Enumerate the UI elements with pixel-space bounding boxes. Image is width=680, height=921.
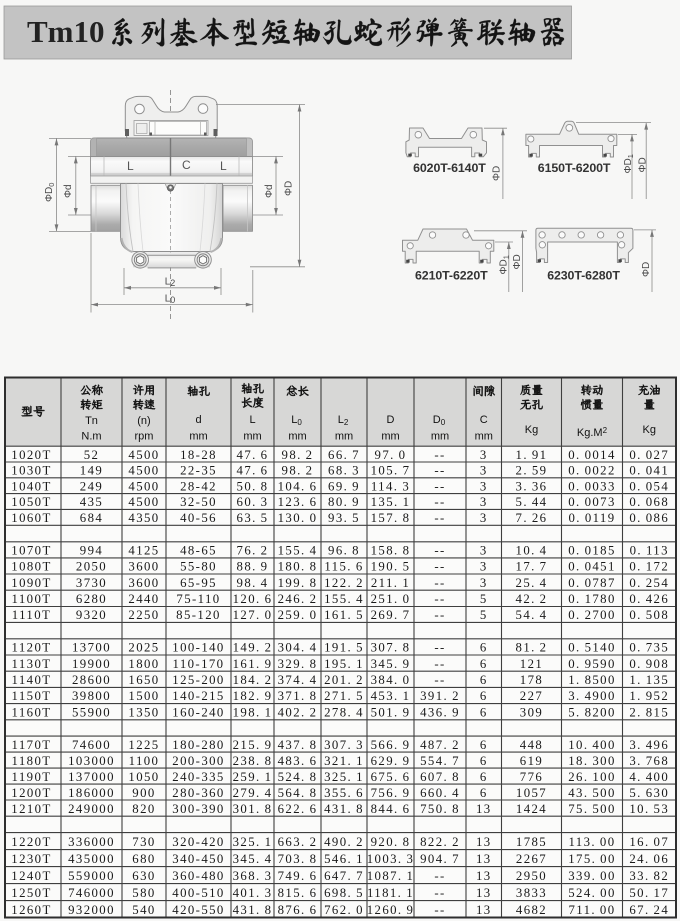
svg-text:--: --	[434, 903, 445, 917]
svg-text:3. 36: 3. 36	[516, 479, 548, 493]
svg-text:746000: 746000	[68, 886, 115, 900]
svg-text:47. 6: 47. 6	[237, 464, 269, 478]
svg-text:190. 5: 190. 5	[371, 560, 411, 574]
svg-text:3600: 3600	[128, 576, 159, 590]
svg-text:675. 6: 675. 6	[371, 770, 411, 784]
svg-text:259. 0: 259. 0	[278, 608, 318, 622]
svg-text:103000: 103000	[68, 754, 115, 768]
svg-text:580: 580	[132, 886, 155, 900]
svg-text:123. 6: 123. 6	[278, 495, 318, 509]
svg-text:3833: 3833	[516, 886, 547, 900]
svg-text:0. 735: 0. 735	[629, 641, 669, 655]
svg-text:240-335: 240-335	[172, 770, 224, 784]
svg-text:1240T: 1240T	[11, 869, 51, 883]
svg-text:900: 900	[132, 786, 155, 800]
svg-text:ΦD: ΦD	[638, 157, 649, 172]
svg-text:201. 2: 201. 2	[324, 673, 364, 687]
svg-text:43. 500: 43. 500	[568, 786, 616, 800]
svg-text:340-450: 340-450	[172, 852, 224, 866]
svg-text:554. 7: 554. 7	[420, 754, 460, 768]
svg-text:C: C	[480, 414, 488, 426]
svg-text:647. 7: 647. 7	[324, 869, 364, 883]
svg-text:320-420: 320-420	[172, 835, 224, 849]
svg-text:730: 730	[132, 835, 155, 849]
svg-text:622. 6: 622. 6	[278, 802, 318, 816]
svg-text:1050T: 1050T	[11, 495, 51, 509]
svg-text:435: 435	[80, 495, 103, 509]
svg-text:--: --	[434, 641, 445, 655]
svg-text:307. 8: 307. 8	[371, 641, 411, 655]
svg-text:55-80: 55-80	[180, 560, 217, 574]
svg-text:336000: 336000	[68, 835, 115, 849]
svg-text:215. 9: 215. 9	[233, 738, 273, 752]
svg-text:1030T: 1030T	[11, 464, 51, 478]
svg-text:5. 8200: 5. 8200	[568, 705, 616, 719]
svg-text:130. 0: 130. 0	[278, 511, 318, 525]
svg-text:355. 6: 355. 6	[324, 786, 364, 800]
svg-text:ΦD: ΦD	[492, 166, 503, 181]
svg-text:815. 6: 815. 6	[278, 886, 318, 900]
svg-text:371. 8: 371. 8	[278, 689, 318, 703]
svg-text:9320: 9320	[76, 608, 107, 622]
svg-text:191. 5: 191. 5	[324, 641, 364, 655]
svg-text:66. 7: 66. 7	[328, 448, 360, 462]
svg-text:1070T: 1070T	[11, 544, 51, 558]
svg-text:0. 508: 0. 508	[629, 608, 669, 622]
svg-text:mm: mm	[335, 431, 353, 443]
svg-text:374. 4: 374. 4	[278, 673, 318, 687]
svg-text:4500: 4500	[128, 464, 159, 478]
svg-text:60. 3: 60. 3	[237, 495, 269, 509]
svg-text:345. 4: 345. 4	[233, 852, 273, 866]
svg-text:149. 2: 149. 2	[233, 641, 273, 655]
svg-text:0. 2700: 0. 2700	[568, 608, 616, 622]
svg-text:L: L	[220, 159, 227, 173]
svg-text:1080T: 1080T	[11, 560, 51, 574]
svg-text:3730: 3730	[76, 576, 107, 590]
svg-text:160-240: 160-240	[172, 705, 224, 719]
svg-text:524. 8: 524. 8	[278, 770, 318, 784]
svg-text:566. 9: 566. 9	[371, 738, 411, 752]
svg-text:98. 2: 98. 2	[282, 448, 314, 462]
svg-text:68. 3: 68. 3	[328, 464, 360, 478]
svg-text:1. 135: 1. 135	[629, 673, 669, 687]
svg-text:1020T: 1020T	[11, 448, 51, 462]
svg-text:0. 041: 0. 041	[629, 464, 669, 478]
svg-text:40-56: 40-56	[180, 511, 217, 525]
svg-text:994: 994	[80, 544, 103, 558]
svg-text:6: 6	[480, 770, 488, 784]
svg-text:10. 400: 10. 400	[568, 738, 616, 752]
svg-text:2250: 2250	[128, 608, 159, 622]
svg-text:75-110: 75-110	[176, 592, 220, 606]
svg-text:--: --	[434, 657, 445, 671]
svg-text:4500: 4500	[128, 479, 159, 493]
svg-text:279. 4: 279. 4	[233, 786, 273, 800]
svg-text:932000: 932000	[68, 903, 115, 917]
svg-text:39800: 39800	[72, 689, 111, 703]
svg-text:32-50: 32-50	[180, 495, 217, 509]
svg-text:2267: 2267	[516, 852, 547, 866]
svg-text:391. 2: 391. 2	[420, 689, 460, 703]
svg-text:0. 0185: 0. 0185	[568, 544, 616, 558]
svg-text:1040T: 1040T	[11, 479, 51, 493]
svg-text:Kg: Kg	[525, 424, 538, 436]
svg-text:1003. 3: 1003. 3	[367, 852, 415, 866]
svg-text:1785: 1785	[516, 835, 547, 849]
svg-text:0. 0022: 0. 0022	[568, 464, 616, 478]
svg-text:13700: 13700	[72, 641, 111, 655]
svg-text:301. 8: 301. 8	[233, 802, 273, 816]
svg-text:1225: 1225	[128, 738, 159, 752]
svg-text:mm: mm	[288, 431, 306, 443]
svg-text:Φd: Φd	[264, 184, 275, 198]
svg-text:402. 2: 402. 2	[278, 705, 318, 719]
svg-text:3: 3	[480, 479, 488, 493]
svg-text:180. 8: 180. 8	[278, 560, 318, 574]
svg-text:3600: 3600	[128, 560, 159, 574]
svg-text:158. 8: 158. 8	[371, 544, 411, 558]
svg-text:762. 0: 762. 0	[324, 903, 364, 917]
svg-text:50. 17: 50. 17	[629, 886, 669, 900]
svg-text:0. 426: 0. 426	[629, 592, 669, 606]
svg-text:321. 1: 321. 1	[324, 754, 364, 768]
svg-text:74600: 74600	[72, 738, 111, 752]
svg-text:16. 07: 16. 07	[629, 835, 669, 849]
svg-text:920. 8: 920. 8	[371, 835, 411, 849]
svg-text:453. 1: 453. 1	[371, 689, 411, 703]
svg-text:876. 6: 876. 6	[278, 903, 318, 917]
svg-text:52: 52	[84, 448, 100, 462]
svg-text:3. 4900: 3. 4900	[568, 689, 616, 703]
svg-text:125-200: 125-200	[172, 673, 224, 687]
svg-text:431. 8: 431. 8	[233, 903, 273, 917]
svg-text:22-35: 22-35	[180, 464, 217, 478]
svg-text:0. 9590: 0. 9590	[568, 657, 616, 671]
svg-text:249: 249	[80, 479, 103, 493]
svg-text:1060T: 1060T	[11, 511, 51, 525]
svg-text:100-140: 100-140	[172, 641, 224, 655]
svg-text:4. 400: 4. 400	[629, 770, 669, 784]
svg-text:663. 2: 663. 2	[278, 835, 318, 849]
svg-text:304. 4: 304. 4	[278, 641, 318, 655]
svg-text:10. 4: 10. 4	[516, 544, 548, 558]
svg-text:1120T: 1120T	[12, 641, 52, 655]
svg-text:6: 6	[480, 689, 488, 703]
svg-text:--: --	[434, 592, 445, 606]
svg-text:368. 3: 368. 3	[233, 869, 273, 883]
svg-text:28600: 28600	[72, 673, 111, 687]
svg-text:88. 9: 88. 9	[237, 560, 269, 574]
svg-text:822. 2: 822. 2	[420, 835, 460, 849]
svg-text:3: 3	[480, 544, 488, 558]
svg-text:13: 13	[476, 903, 492, 917]
svg-text:3: 3	[480, 560, 488, 574]
svg-text:--: --	[434, 464, 445, 478]
svg-text:1150T: 1150T	[12, 689, 52, 703]
svg-text:(n): (n)	[137, 415, 150, 427]
svg-text:3: 3	[480, 495, 488, 509]
svg-text:1100T: 1100T	[12, 592, 52, 606]
svg-text:0. 254: 0. 254	[629, 576, 669, 590]
svg-text:175. 00: 175. 00	[568, 852, 616, 866]
svg-text:524. 00: 524. 00	[568, 886, 616, 900]
svg-text:98. 4: 98. 4	[237, 576, 269, 590]
svg-text:80. 9: 80. 9	[328, 495, 360, 509]
svg-text:1650: 1650	[128, 673, 159, 687]
svg-text:Tn: Tn	[85, 415, 98, 427]
svg-text:5. 630: 5. 630	[629, 786, 669, 800]
svg-text:Kg: Kg	[643, 424, 656, 436]
svg-text:3: 3	[480, 448, 488, 462]
svg-text:178: 178	[520, 673, 543, 687]
svg-text:69. 9: 69. 9	[328, 479, 360, 493]
svg-text:6: 6	[480, 641, 488, 655]
svg-text:1220T: 1220T	[11, 835, 51, 849]
svg-text:ΦD: ΦD	[641, 262, 652, 277]
svg-text:680: 680	[132, 852, 155, 866]
svg-text:--: --	[434, 495, 445, 509]
svg-text:184. 2: 184. 2	[233, 673, 273, 687]
svg-text:0. 113: 0. 113	[630, 544, 669, 558]
svg-text:431. 8: 431. 8	[324, 802, 364, 816]
svg-text:Φd: Φd	[63, 184, 74, 198]
svg-text:1180T: 1180T	[12, 754, 52, 768]
svg-text:3. 768: 3. 768	[629, 754, 669, 768]
svg-text:4350: 4350	[128, 511, 159, 525]
svg-text:1424: 1424	[516, 802, 547, 816]
svg-text:200-300: 200-300	[172, 754, 224, 768]
svg-text:300-390: 300-390	[172, 802, 224, 816]
svg-text:329. 8: 329. 8	[278, 657, 318, 671]
svg-text:122. 2: 122. 2	[324, 576, 364, 590]
svg-text:1. 952: 1. 952	[629, 689, 669, 703]
svg-text:684: 684	[80, 511, 103, 525]
svg-text:1130T: 1130T	[12, 657, 52, 671]
svg-text:--: --	[434, 479, 445, 493]
svg-text:13: 13	[476, 835, 492, 849]
svg-text:5. 44: 5. 44	[516, 495, 548, 509]
svg-text:47. 6: 47. 6	[237, 448, 269, 462]
svg-text:120. 6: 120. 6	[233, 592, 273, 606]
svg-text:Tm10: Tm10	[27, 14, 105, 49]
svg-text:1090T: 1090T	[11, 576, 51, 590]
svg-text:750. 8: 750. 8	[420, 802, 460, 816]
svg-text:mm: mm	[243, 431, 261, 443]
svg-text:63. 5: 63. 5	[237, 511, 269, 525]
svg-text:227: 227	[520, 689, 543, 703]
svg-text:199. 8: 199. 8	[278, 576, 318, 590]
svg-text:mm: mm	[431, 431, 449, 443]
svg-text:420-550: 420-550	[172, 903, 224, 917]
svg-text:67. 24: 67. 24	[629, 903, 669, 917]
svg-text:540: 540	[132, 903, 155, 917]
svg-text:401. 3: 401. 3	[233, 886, 273, 900]
svg-text:0. 5140: 0. 5140	[568, 641, 616, 655]
svg-text:1181. 1: 1181. 1	[367, 886, 414, 900]
svg-text:6: 6	[480, 705, 488, 719]
svg-text:400-510: 400-510	[172, 886, 224, 900]
svg-text:1050: 1050	[128, 770, 159, 784]
svg-text:L2: L2	[165, 277, 176, 289]
svg-text:--: --	[434, 576, 445, 590]
svg-text:0. 0787: 0. 0787	[568, 576, 616, 590]
svg-text:ΦD: ΦD	[284, 181, 295, 196]
svg-text:6280: 6280	[76, 592, 107, 606]
svg-text:436. 9: 436. 9	[420, 705, 460, 719]
svg-text:6020T-6140T: 6020T-6140T	[413, 161, 486, 175]
svg-text:3: 3	[480, 511, 488, 525]
svg-text:180-280: 180-280	[172, 738, 224, 752]
svg-text:25. 4: 25. 4	[516, 576, 548, 590]
svg-text:N.m: N.m	[81, 431, 101, 443]
svg-text:437. 8: 437. 8	[278, 738, 318, 752]
svg-text:198. 1: 198. 1	[233, 705, 273, 719]
svg-text:0. 0451: 0. 0451	[568, 560, 616, 574]
svg-text:161. 5: 161. 5	[324, 608, 364, 622]
svg-text:114. 3: 114. 3	[371, 479, 410, 493]
svg-text:1230T: 1230T	[11, 852, 51, 866]
svg-text:--: --	[434, 560, 445, 574]
svg-text:619: 619	[520, 754, 543, 768]
svg-text:1057: 1057	[516, 786, 547, 800]
svg-text:C: C	[182, 158, 191, 172]
svg-text:13: 13	[476, 802, 492, 816]
svg-text:238. 8: 238. 8	[233, 754, 273, 768]
svg-text:756. 9: 756. 9	[371, 786, 411, 800]
svg-text:mm: mm	[475, 431, 493, 443]
svg-text:50. 8: 50. 8	[237, 479, 269, 493]
svg-text:6230T-6280T: 6230T-6280T	[547, 269, 620, 283]
svg-text:182. 9: 182. 9	[233, 689, 273, 703]
svg-text:98. 2: 98. 2	[282, 464, 314, 478]
svg-text:0. 1780: 0. 1780	[568, 592, 616, 606]
svg-text:24. 06: 24. 06	[629, 852, 669, 866]
svg-text:--: --	[434, 869, 445, 883]
svg-text:2440: 2440	[128, 592, 159, 606]
svg-text:1250T: 1250T	[11, 886, 51, 900]
svg-text:--: --	[434, 886, 445, 900]
svg-text:d: d	[195, 414, 201, 426]
svg-text:3: 3	[480, 576, 488, 590]
svg-text:--: --	[434, 448, 445, 462]
svg-text:749. 6: 749. 6	[278, 869, 318, 883]
svg-text:10. 53: 10. 53	[629, 802, 669, 816]
svg-text:155. 4: 155. 4	[324, 592, 364, 606]
svg-text:--: --	[434, 511, 445, 525]
svg-text:711. 00: 711. 00	[568, 903, 615, 917]
svg-text:307. 3: 307. 3	[324, 738, 364, 752]
svg-text:0. 908: 0. 908	[629, 657, 669, 671]
svg-text:1260. 9: 1260. 9	[367, 903, 415, 917]
svg-text:776: 776	[520, 770, 543, 784]
svg-text:--: --	[434, 544, 445, 558]
svg-text:105. 7: 105. 7	[371, 464, 411, 478]
svg-text:6: 6	[480, 673, 488, 687]
svg-text:48-65: 48-65	[180, 544, 217, 558]
svg-text:1800: 1800	[128, 657, 159, 671]
svg-text:1170T: 1170T	[12, 738, 52, 752]
svg-text:0. 054: 0. 054	[629, 479, 669, 493]
svg-text:149: 149	[80, 464, 103, 478]
svg-text:6150T-6200T: 6150T-6200T	[538, 161, 611, 175]
svg-text:546. 1: 546. 1	[324, 852, 364, 866]
svg-text:121: 121	[520, 657, 543, 671]
svg-text:2050: 2050	[76, 560, 107, 574]
svg-text:448: 448	[520, 738, 543, 752]
svg-text:309: 309	[520, 705, 543, 719]
svg-text:D: D	[387, 414, 395, 426]
svg-text:1110T: 1110T	[12, 608, 51, 622]
svg-text:6: 6	[480, 657, 488, 671]
svg-text:0. 0033: 0. 0033	[568, 479, 616, 493]
svg-text:155. 4: 155. 4	[278, 544, 318, 558]
svg-text:26. 100: 26. 100	[568, 770, 616, 784]
svg-text:18. 300: 18. 300	[568, 754, 616, 768]
svg-text:2950: 2950	[516, 869, 547, 883]
svg-text:0. 0119: 0. 0119	[568, 511, 615, 525]
svg-text:1210T: 1210T	[11, 802, 51, 816]
svg-text:135. 1: 135. 1	[371, 495, 411, 509]
svg-text:280-360: 280-360	[172, 786, 224, 800]
svg-text:1350: 1350	[128, 705, 159, 719]
svg-text:1200T: 1200T	[11, 786, 51, 800]
svg-text:6210T-6220T: 6210T-6220T	[415, 269, 488, 283]
svg-text:195. 1: 195. 1	[324, 657, 364, 671]
svg-text:0. 027: 0. 027	[629, 448, 669, 462]
svg-text:490. 2: 490. 2	[324, 835, 364, 849]
svg-text:3. 496: 3. 496	[629, 738, 669, 752]
svg-text:--: --	[434, 673, 445, 687]
svg-text:0. 0014: 0. 0014	[568, 448, 616, 462]
svg-text:564. 8: 564. 8	[278, 786, 318, 800]
svg-text:140-215: 140-215	[172, 689, 224, 703]
svg-text:4500: 4500	[128, 448, 159, 462]
svg-text:75. 500: 75. 500	[568, 802, 616, 816]
svg-text:110-170: 110-170	[173, 657, 225, 671]
svg-text:L0: L0	[165, 294, 176, 306]
svg-text:17. 7: 17. 7	[516, 560, 548, 574]
svg-text:13: 13	[476, 852, 492, 866]
svg-text:4500: 4500	[128, 495, 159, 509]
svg-text:1087. 1: 1087. 1	[367, 869, 415, 883]
svg-text:325. 1: 325. 1	[324, 770, 364, 784]
svg-text:6: 6	[480, 738, 488, 752]
svg-text:33. 82: 33. 82	[629, 869, 669, 883]
svg-text:ΦD: ΦD	[512, 254, 523, 269]
svg-text:339. 00: 339. 00	[568, 869, 616, 883]
svg-text:1. 8500: 1. 8500	[568, 673, 616, 687]
svg-text:113. 00: 113. 00	[568, 835, 615, 849]
svg-text:6: 6	[480, 786, 488, 800]
svg-text:904. 7: 904. 7	[420, 852, 460, 866]
svg-text:483. 6: 483. 6	[278, 754, 318, 768]
svg-text:844. 6: 844. 6	[371, 802, 411, 816]
svg-text:0. 0073: 0. 0073	[568, 495, 616, 509]
svg-text:0. 068: 0. 068	[629, 495, 669, 509]
svg-text:L: L	[127, 159, 134, 173]
svg-text:104. 6: 104. 6	[278, 479, 318, 493]
svg-text:65-95: 65-95	[180, 576, 217, 590]
svg-text:2. 815: 2. 815	[629, 705, 669, 719]
svg-text:5: 5	[480, 608, 488, 622]
svg-text:55900: 55900	[72, 705, 111, 719]
svg-text:54. 4: 54. 4	[516, 608, 548, 622]
svg-text:0. 172: 0. 172	[629, 560, 669, 574]
svg-text:246. 2: 246. 2	[278, 592, 318, 606]
svg-text:157. 8: 157. 8	[371, 511, 411, 525]
svg-text:487. 2: 487. 2	[420, 738, 460, 752]
